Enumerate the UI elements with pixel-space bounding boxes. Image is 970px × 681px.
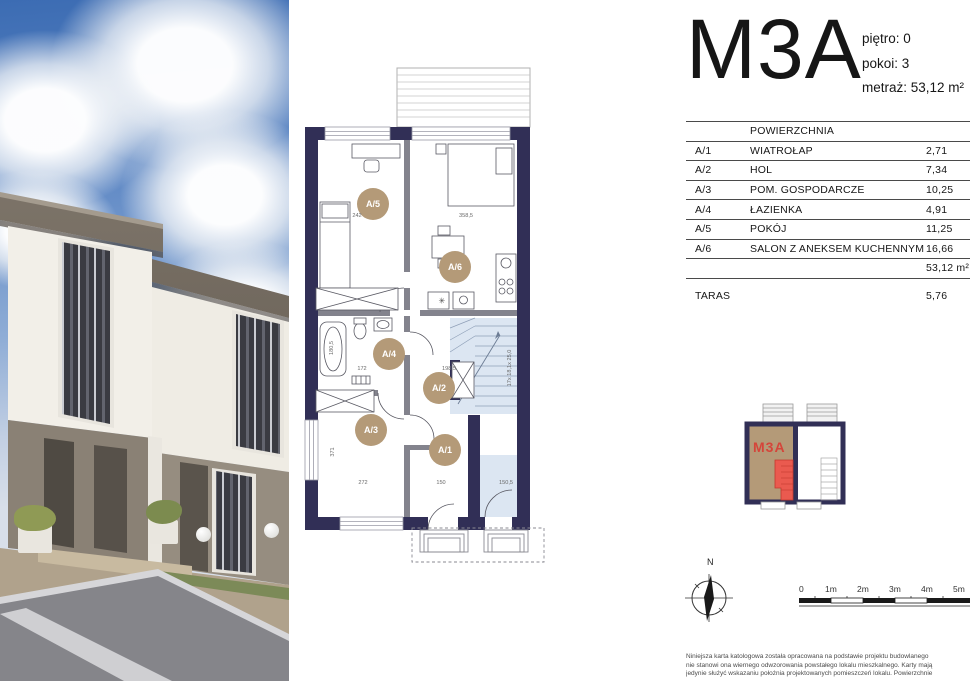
minimap-unit-label: M3A: [753, 439, 786, 455]
row-area: 4,91: [926, 204, 970, 216]
scale-label: 5m: [953, 584, 965, 594]
row-area: 16,66: [926, 243, 970, 255]
room-badge-label: A/1: [438, 445, 452, 455]
area-table: POWIERZCHNIA A/1WIATROŁAP2,71A/2HOL7,34A…: [686, 121, 970, 305]
entry-area: [480, 455, 517, 517]
room-badge-label: A/3: [364, 425, 378, 435]
dimension-label: 180,5: [329, 341, 335, 355]
scale-label: 4m: [921, 584, 933, 594]
building-render-photo: [0, 0, 289, 681]
room-badge-label: A/4: [382, 349, 396, 359]
row-area: 11,25: [926, 223, 970, 235]
table-row: A/2HOL7,34: [686, 161, 970, 181]
table-row: A/5POKÓJ11,25: [686, 220, 970, 240]
row-name: SALON Z ANEKSEM KUCHENNYM: [750, 243, 926, 255]
taras-value: 5,76: [926, 290, 970, 302]
location-minimap: M3A: [733, 396, 857, 518]
row-area: 7,34: [926, 164, 970, 176]
room-badge-label: A/6: [448, 262, 462, 272]
area-spec: metraż: 53,12 m²: [862, 76, 964, 101]
dimension-label: 198,5: [442, 366, 456, 372]
row-code: A/2: [686, 164, 750, 176]
unit-specs: piętro: 0 pokoi: 3 metraż: 53,12 m²: [862, 27, 964, 101]
table-header-row: POWIERZCHNIA: [686, 121, 970, 142]
dimension-label: 17x 18,1x 25,0: [507, 350, 513, 387]
total-area: 53,12 m²: [926, 262, 970, 274]
scale-label: 2m: [857, 584, 869, 594]
disclaimer-text: Niniejsza karta katologowa została oprac…: [686, 653, 970, 679]
dimension-label: 358,5: [459, 213, 473, 219]
table-total-row: 53,12 m²: [686, 259, 970, 279]
table-row: A/6SALON Z ANEKSEM KUCHENNYM16,66: [686, 240, 970, 260]
row-code: A/6: [686, 243, 750, 255]
scale-label: 1m: [825, 584, 837, 594]
sphere-lamp: [264, 523, 279, 538]
dimension-label: 172: [357, 366, 366, 372]
row-name: POKÓJ: [750, 223, 926, 235]
scale-bar: 01m2m3m4m5m: [797, 580, 970, 614]
row-code: A/1: [686, 145, 750, 157]
dimension-label: 242: [352, 213, 361, 219]
disclaimer-line: jedynie służyć wskazaniu położnia projek…: [686, 670, 970, 679]
table-header: POWIERZCHNIA: [750, 125, 926, 137]
compass: N: [683, 553, 738, 633]
dimension-label: 272: [358, 480, 367, 486]
row-code: A/4: [686, 204, 750, 216]
row-code: A/3: [686, 184, 750, 196]
row-name: POM. GOSPODARCZE: [750, 184, 926, 196]
sphere-lamp: [196, 527, 211, 542]
scale-segments: [799, 596, 970, 606]
scale-label: 3m: [889, 584, 901, 594]
dimension-label: 150,5: [499, 480, 513, 486]
table-row: A/1WIATROŁAP2,71: [686, 142, 970, 162]
washer-symbol: ✳: [439, 297, 446, 306]
exterior-steps: [412, 528, 544, 562]
plant: [14, 505, 56, 531]
disclaimer-line: Niniejsza karta katologowa została oprac…: [686, 653, 970, 662]
floor-plan: ✳ A/5A/6A/4A/2A/3A/1 242358,5180,5172198…: [300, 60, 570, 570]
row-name: WIATROŁAP: [750, 145, 926, 157]
dimension-label: 371: [330, 447, 336, 456]
table-row: A/4ŁAZIENKA4,91: [686, 200, 970, 220]
minimap-terraces: [763, 404, 837, 422]
disclaimer-line: nie stanowi ona wiernego odwzorowania po…: [686, 662, 970, 671]
dimension-label: 150: [436, 480, 445, 486]
room-badge-label: A/5: [366, 199, 380, 209]
scale-label: 0: [799, 584, 804, 594]
row-name: ŁAZIENKA: [750, 204, 926, 216]
rooms-spec: pokoi: 3: [862, 52, 964, 77]
table-row: A/3POM. GOSPODARCZE10,25: [686, 181, 970, 201]
taras-row: TARAS 5,76: [686, 287, 970, 306]
room-badge-label: A/2: [432, 383, 446, 393]
row-code: A/5: [686, 223, 750, 235]
row-name: HOL: [750, 164, 926, 176]
minimap-divider-wall: [793, 426, 798, 502]
row-area: 10,25: [926, 184, 970, 196]
compass-north-label: N: [707, 557, 714, 567]
row-area: 2,71: [926, 145, 970, 157]
floor-spec: piętro: 0: [862, 27, 964, 52]
compass-needle: [704, 575, 714, 621]
unit-title: M3A: [686, 0, 862, 104]
taras-label: TARAS: [686, 290, 750, 302]
terrace: [397, 68, 530, 127]
